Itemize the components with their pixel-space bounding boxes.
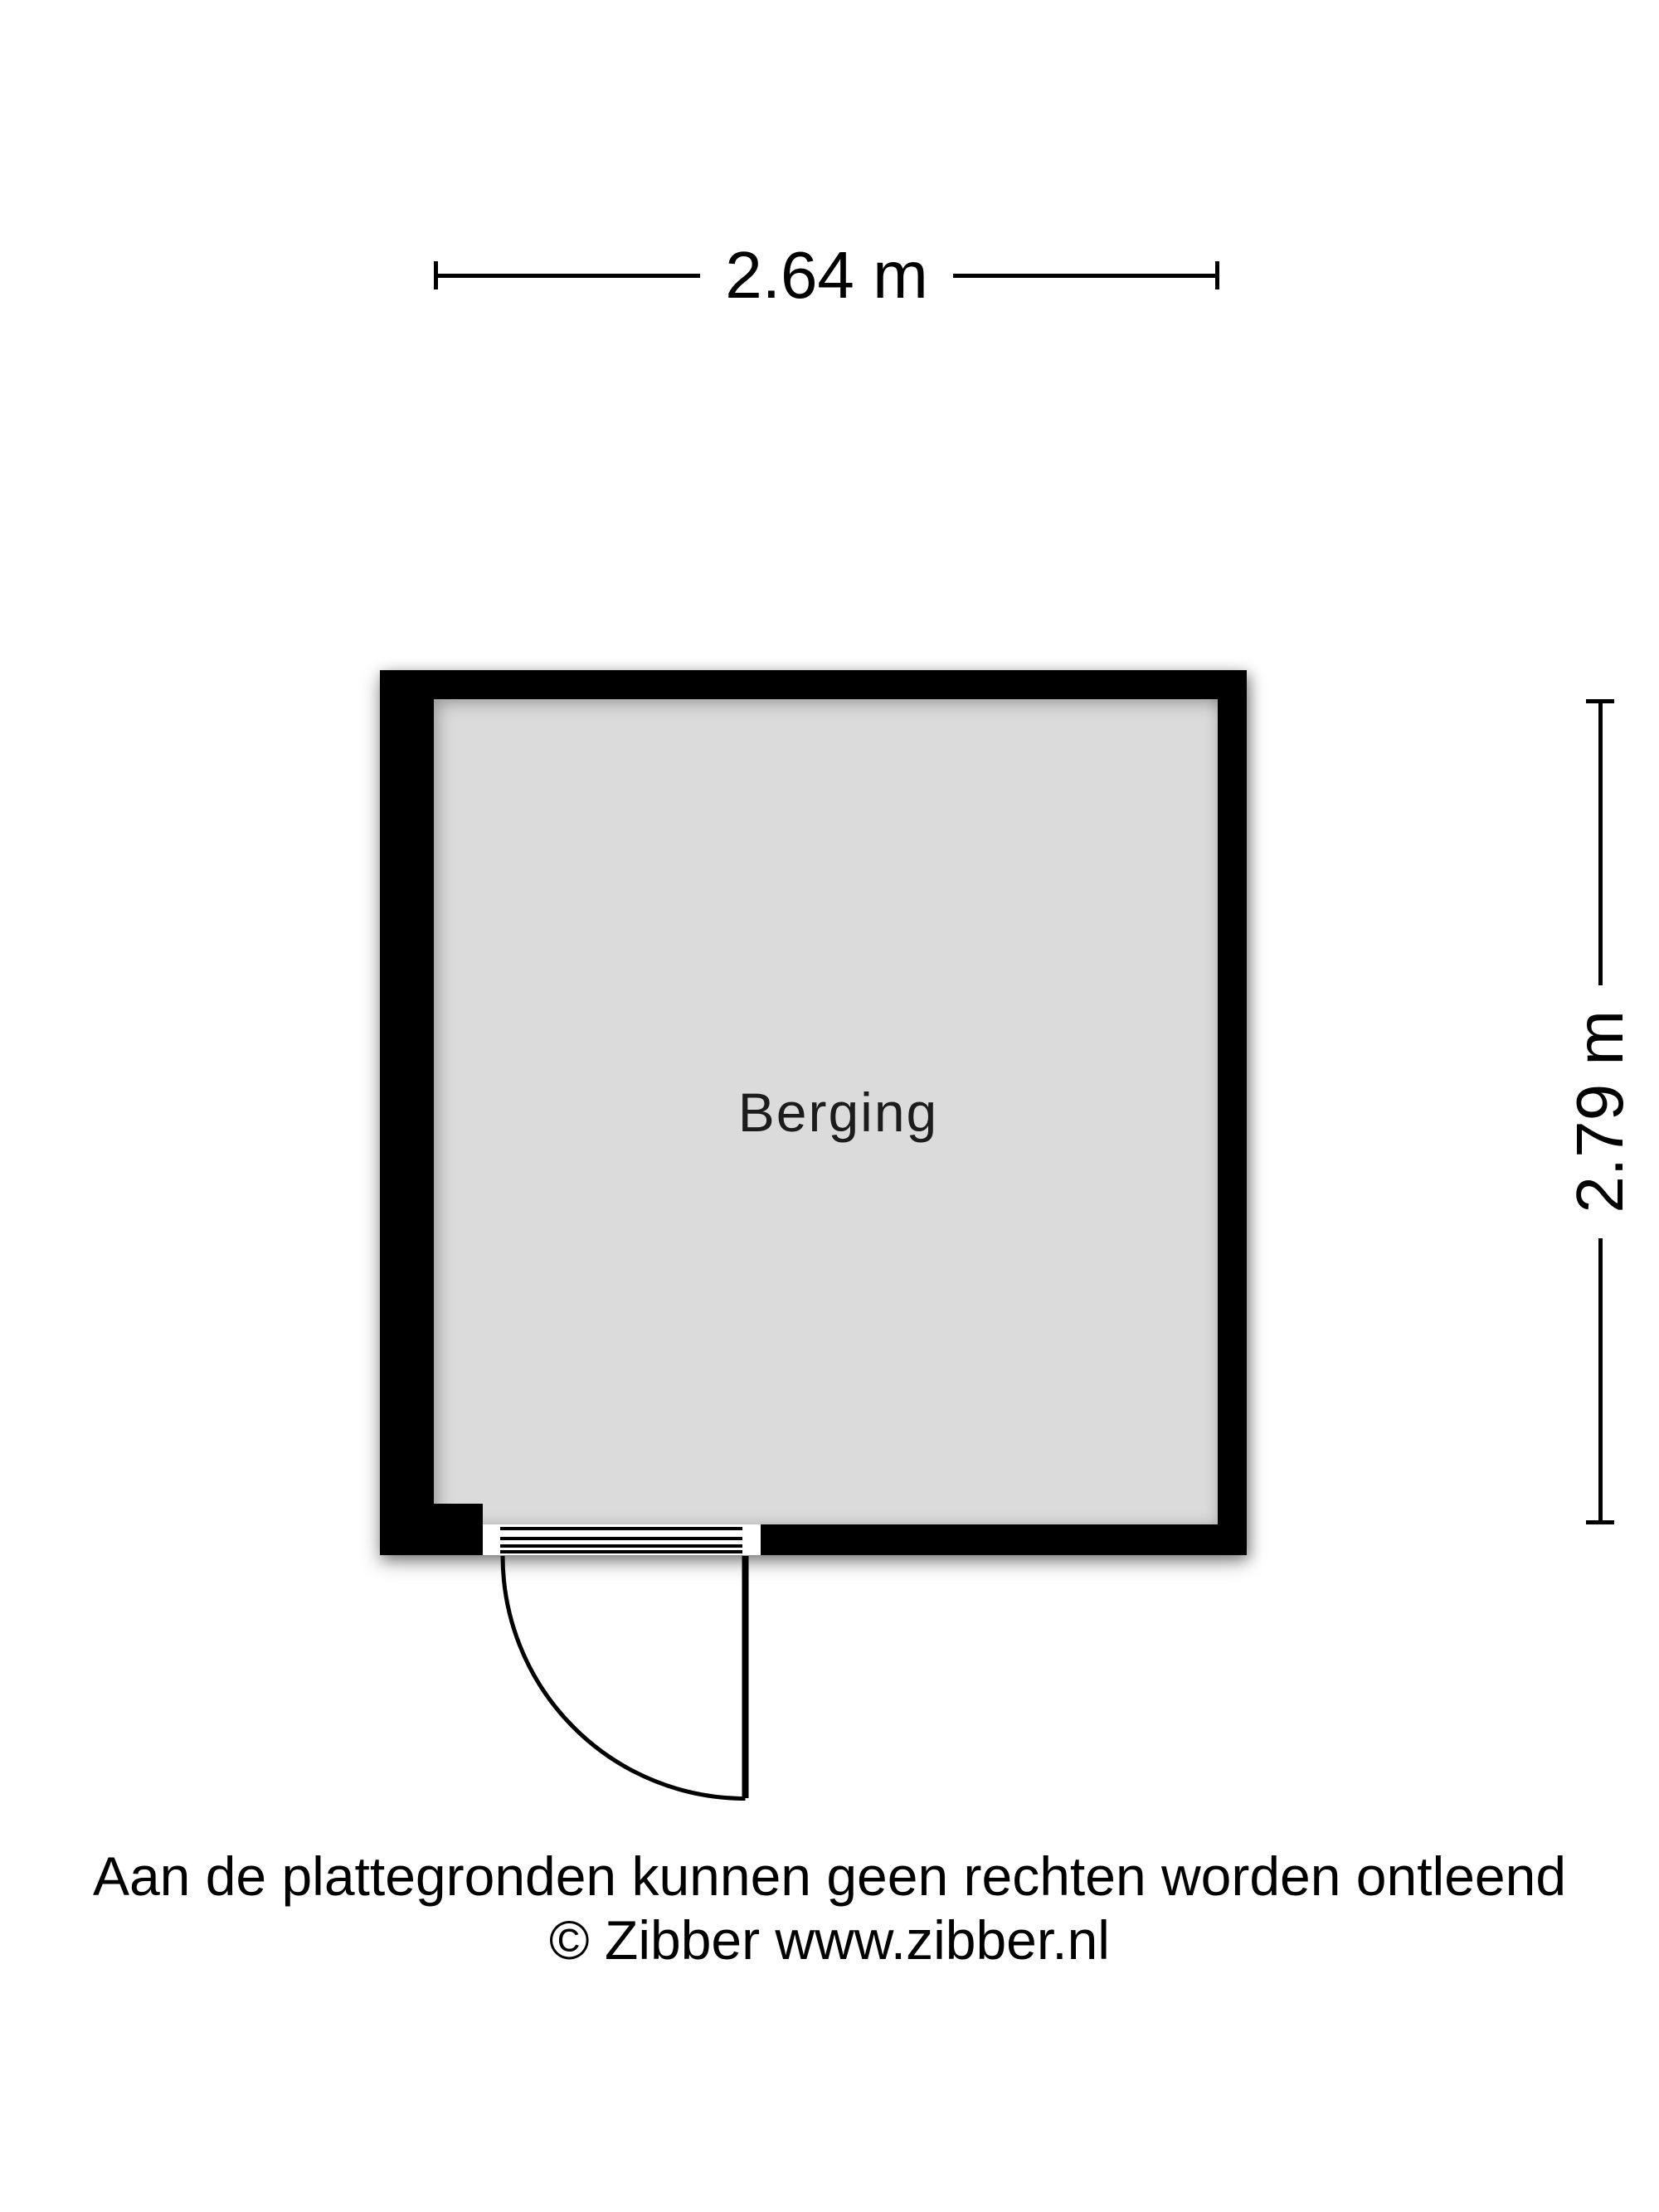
door-threshold — [500, 1527, 742, 1553]
footer-copyright: © Zibber www.zibber.nl — [0, 1908, 1659, 1972]
door-swing-arc — [503, 1556, 746, 1799]
dimension-line-segment — [1598, 1238, 1603, 1520]
dimension-line-segment — [1598, 703, 1603, 985]
room-floor: Berging — [434, 699, 1218, 1524]
width-dimension-label: 2.64 m — [700, 242, 953, 309]
room-walls: Berging — [380, 670, 1247, 1555]
wall-pier — [434, 1504, 483, 1555]
dimension-line-segment — [953, 274, 1215, 278]
height-dimension-label: 2.79 m — [1567, 985, 1633, 1238]
threshold-line — [500, 1544, 742, 1548]
dimension-tick-bottom — [1586, 1520, 1614, 1524]
footer: Aan de plattegronden kunnen geen rechten… — [0, 1845, 1659, 1972]
room-label: Berging — [738, 1081, 939, 1144]
floorplan-page: 2.64 m 2.79 m Berging Aan de plattegrond… — [0, 0, 1659, 2212]
width-dimension: 2.64 m — [434, 242, 1219, 309]
footer-disclaimer: Aan de plattegronden kunnen geen rechten… — [0, 1845, 1659, 1908]
dimension-tick-right — [1215, 261, 1219, 289]
height-dimension: 2.79 m — [1581, 699, 1619, 1524]
dimension-line-segment — [438, 274, 700, 278]
threshold-line — [500, 1537, 742, 1540]
